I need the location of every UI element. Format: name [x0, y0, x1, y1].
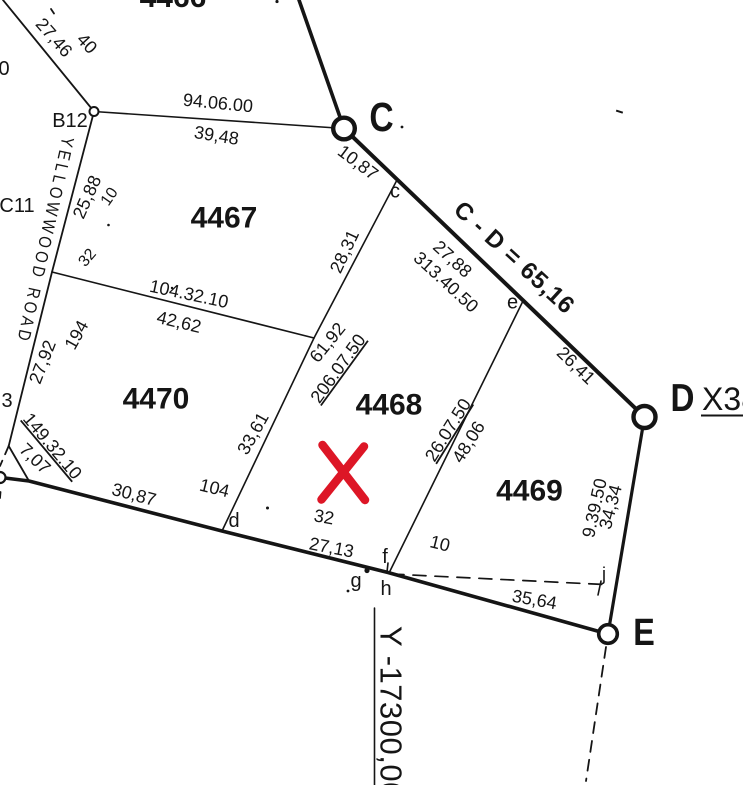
- svg-text:E: E: [633, 612, 655, 654]
- svg-text:j: j: [601, 564, 606, 584]
- svg-text:d: d: [228, 510, 239, 532]
- svg-text:4470: 4470: [123, 383, 190, 416]
- svg-text:e: e: [507, 292, 518, 314]
- svg-text:D: D: [671, 375, 695, 419]
- svg-text:Y -17300,00: Y -17300,00: [374, 626, 409, 785]
- svg-text:4466: 4466: [140, 0, 207, 14]
- svg-text:32: 32: [312, 505, 335, 528]
- svg-text:C: C: [369, 94, 393, 140]
- svg-text:4468: 4468: [356, 389, 423, 422]
- svg-text:c: c: [390, 181, 400, 203]
- svg-text:0: 0: [0, 58, 10, 80]
- svg-text:g: g: [350, 570, 361, 592]
- svg-text:C11: C11: [0, 195, 35, 217]
- svg-text:h: h: [380, 578, 391, 600]
- svg-text:f: f: [382, 546, 388, 568]
- svg-text:4469: 4469: [496, 475, 563, 508]
- svg-text:B12: B12: [52, 110, 88, 132]
- svg-text:X38: X38: [702, 381, 743, 417]
- svg-text:3: 3: [1, 390, 12, 412]
- svg-text:4467: 4467: [191, 202, 258, 235]
